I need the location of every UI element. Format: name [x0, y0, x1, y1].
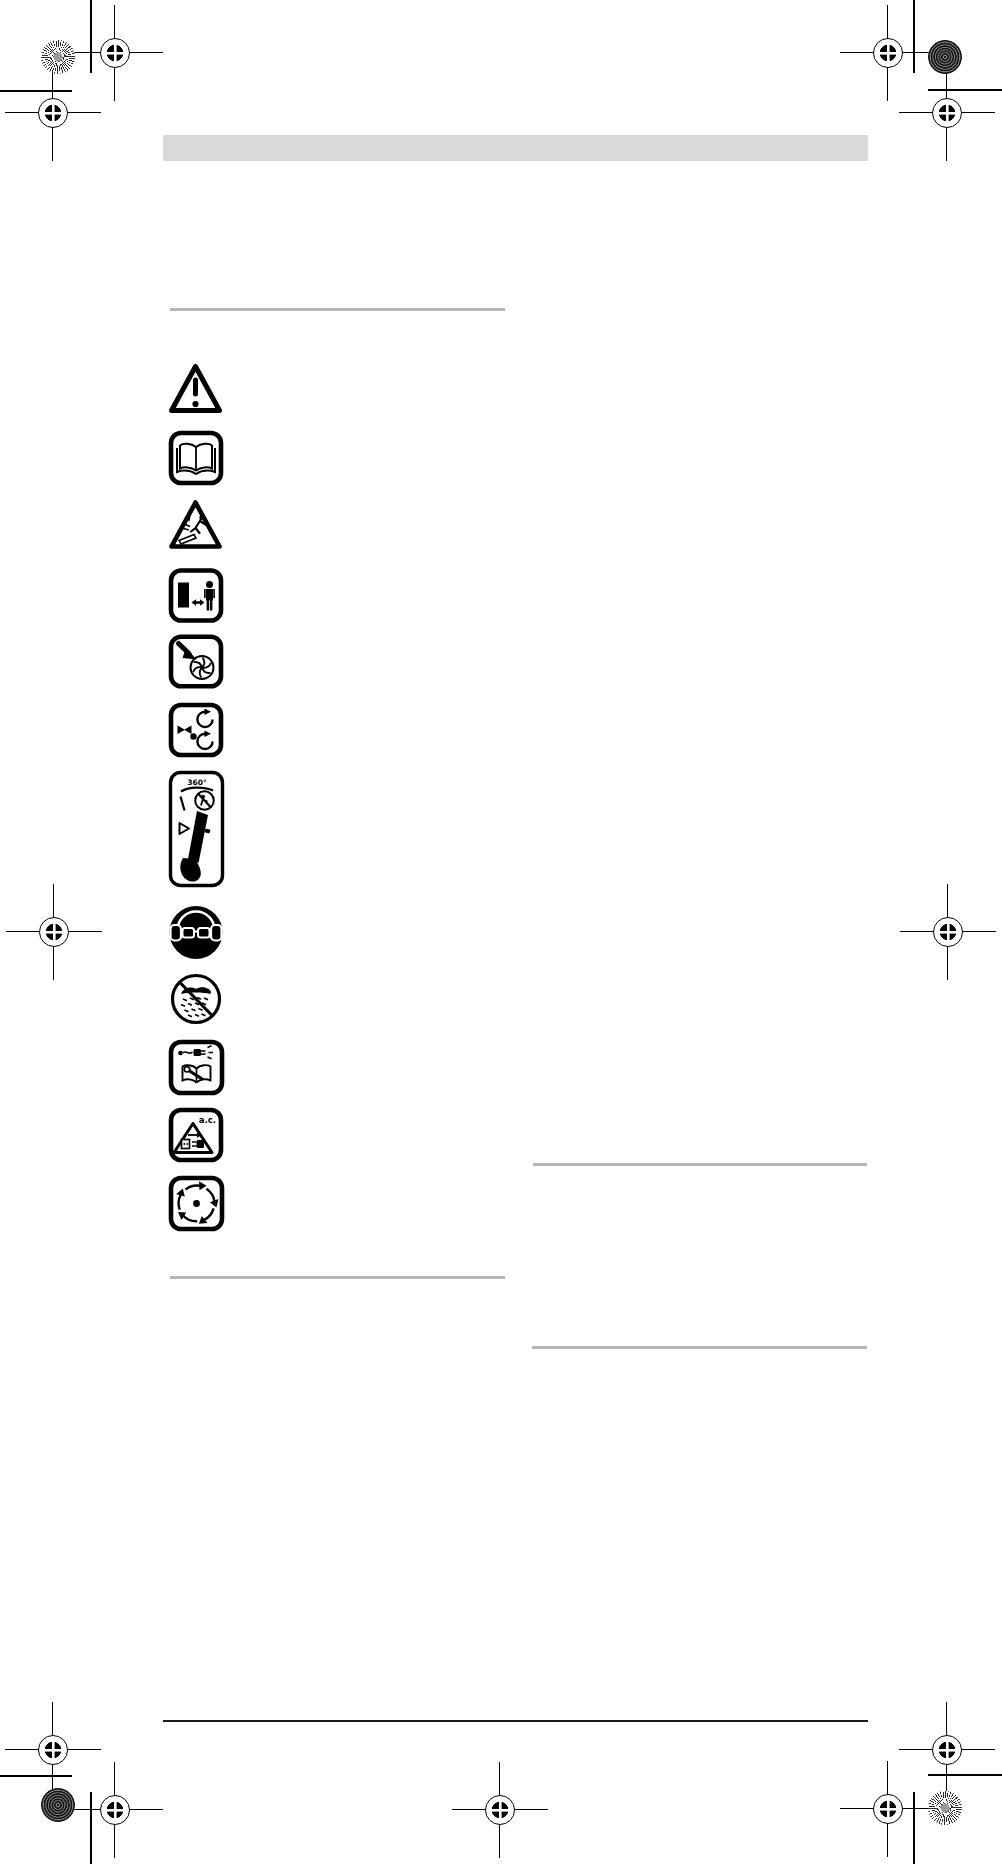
read-manual-icon	[168, 430, 224, 486]
left-column-rule-bottom	[170, 1276, 505, 1279]
suction-debris-icon	[168, 702, 224, 758]
moire-disc-icon	[41, 1788, 75, 1822]
left-column-rule-top	[170, 308, 505, 311]
blower-no-people-360-icon: 360°	[168, 770, 225, 888]
registration-target-icon	[840, 1761, 936, 1857]
unplug-before-service-icon	[168, 1039, 225, 1096]
registration-target-icon	[6, 884, 102, 980]
registration-target-icon	[67, 1762, 163, 1858]
general-warning-icon	[166, 361, 225, 418]
manual-page: 360°	[0, 0, 1002, 1864]
no-rain-icon	[168, 971, 224, 1027]
moire-disc-icon	[928, 40, 962, 74]
starburst-disc-icon	[41, 40, 75, 74]
registration-target-icon	[5, 65, 101, 161]
keep-bystanders-away-icon	[168, 567, 224, 624]
registration-target-icon	[452, 1762, 548, 1858]
footer-rule	[163, 1720, 868, 1722]
right-column-rule-top	[533, 1163, 867, 1166]
right-column-rule-bottom	[532, 1346, 867, 1349]
impeller-runs-on-icon	[168, 1175, 225, 1232]
ac-disconnect-icon: a.c.	[168, 1107, 224, 1163]
starburst-disc-icon	[928, 1791, 962, 1825]
eye-ear-protection-icon	[166, 902, 226, 962]
thrown-objects-icon	[166, 497, 225, 554]
ac-text: a.c.	[199, 1115, 216, 1125]
rotating-fan-hand-icon	[168, 634, 224, 689]
registration-target-icon	[899, 65, 995, 161]
blower-360-text: 360°	[187, 778, 207, 787]
registration-target-icon	[900, 884, 996, 980]
section-header-bar	[163, 135, 868, 161]
